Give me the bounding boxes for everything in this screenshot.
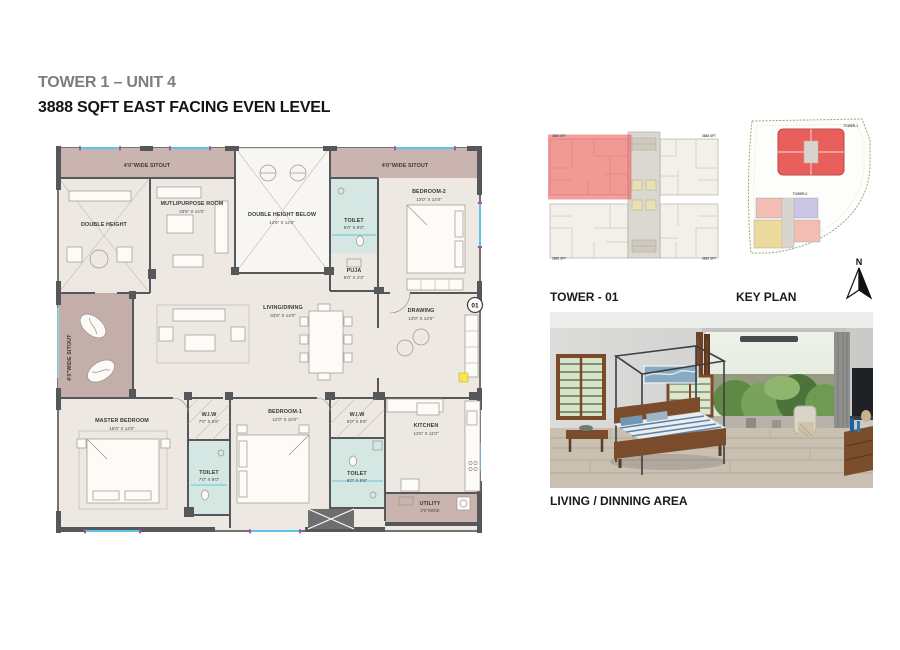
toilet2-dim: 6'0" X 9'0": [344, 225, 365, 230]
key-plan-label: KEY PLAN: [736, 290, 796, 304]
puja-dim: 6'0" X 4'3": [344, 275, 365, 280]
unit-area-bottom-left: 3888 SFT: [552, 257, 566, 261]
photo-artwork: [644, 366, 698, 383]
site-tower1: [778, 129, 844, 175]
site-tower2-label: TOWER-2: [793, 192, 808, 196]
unit-area-top-left: 3888 SFT: [552, 134, 566, 138]
bedroom1-label: BEDROOM-1: [268, 409, 302, 415]
photo-curtain: [834, 332, 850, 428]
tower-floor-keyplan: 3888 SFT 3888 SFT 3888 SFT 3888 SFT: [548, 130, 720, 260]
north-arrow-icon: N: [842, 254, 876, 304]
toilet1-label: TOILET: [347, 471, 367, 477]
photo-armchair: [794, 406, 816, 436]
multipurpose-label: MUTLIPURPOSE ROOM: [161, 201, 224, 207]
photo-caption: LIVING / DINNING AREA: [550, 494, 688, 508]
master-bedroom-label: MASTER BEDROOM: [95, 418, 149, 424]
bedroom2-dim: 13'0" X 14'0": [416, 197, 442, 202]
double-height-label: DOUBLE HEIGHT: [81, 222, 128, 228]
utility-label: UTILITY: [419, 501, 440, 507]
highlighted-unit: [548, 135, 631, 199]
wiw-bed1-dim: 6'0" X 5'6": [347, 419, 368, 424]
multipurpose-dim: 23'6" X 14'0": [179, 209, 205, 214]
sitout-top-right-label: 4'0"WIDE SITOUT: [382, 163, 429, 169]
tower-01-label: TOWER - 01: [550, 290, 618, 304]
toilet2-label: TOILET: [344, 218, 364, 224]
living-dining-dim: 33'6" X 14'0": [270, 313, 296, 318]
double-height-below-label: DOUBLE HEIGHT BELOW: [248, 212, 317, 218]
toilet-master-dim: 7'0" X 9'0": [199, 477, 220, 482]
wiw-master-dim: 7'0" X 5'6": [199, 419, 220, 424]
sitout-top-left-label: 4'0"WIDE SITOUT: [124, 163, 171, 169]
toilet-master-label: TOILET: [199, 470, 219, 476]
site-keyplan: TOWER-1 TOWER-2: [736, 116, 880, 262]
puja-label: PUJA: [347, 268, 362, 274]
kitchen-dim: 13'6" X 11'0": [413, 431, 438, 436]
interior-photo: [550, 312, 873, 488]
living-dining-label: LIVING/DINING: [263, 305, 303, 311]
double-height-below-dim: 12'6" X 14'0": [269, 220, 295, 225]
north-label: N: [856, 257, 863, 267]
bedroom2-label: BEDROOM-2: [412, 189, 446, 195]
drawing-label: DRAWING: [408, 308, 435, 314]
toilet1-dim: 6'0" X 9'6": [347, 478, 368, 483]
drawing-dim: 13'0" X 14'0": [408, 316, 434, 321]
sitout-left-label: 4'0"WIDE SITOUT: [67, 334, 73, 381]
page-subtitle: 3888 SQFT EAST FACING EVEN LEVEL: [38, 99, 330, 117]
wiw-master-label: W.I.W: [202, 412, 218, 418]
double-height-below-area: [235, 148, 330, 273]
site-tower1-label: TOWER-1: [843, 124, 858, 128]
photo-ac-vent: [740, 336, 798, 342]
photo-ceiling: [550, 312, 873, 328]
kitchen-label: KITCHEN: [414, 423, 439, 429]
unit-floor-plan: 01 4'0"WIDE SITOUT 4'0"WIDE SITOUT 4'0"W…: [55, 143, 500, 543]
unit-area-top-right: 3888 SFT: [702, 134, 716, 138]
unit-area-bottom-right: 3888 SFT: [702, 257, 716, 261]
utility-dim: 3'0"WIDE: [420, 508, 439, 513]
bedroom1-dim: 12'0" X 15'0": [272, 417, 298, 422]
wiw-bed1-label: W.I.W: [350, 412, 366, 418]
unit-number: 01: [471, 303, 479, 310]
photo-window-left: [558, 356, 604, 418]
entrance-block: [308, 509, 354, 529]
tower-core: [628, 132, 660, 258]
brochure-page: TOWER 1 – UNIT 4 3888 SQFT EAST FACING E…: [0, 0, 900, 650]
page-title: TOWER 1 – UNIT 4: [38, 74, 176, 92]
master-bedroom-dim: 16'0" X 14'0": [109, 426, 135, 431]
unit-number-badge: 01: [468, 298, 483, 313]
site-tower2: [754, 198, 820, 248]
